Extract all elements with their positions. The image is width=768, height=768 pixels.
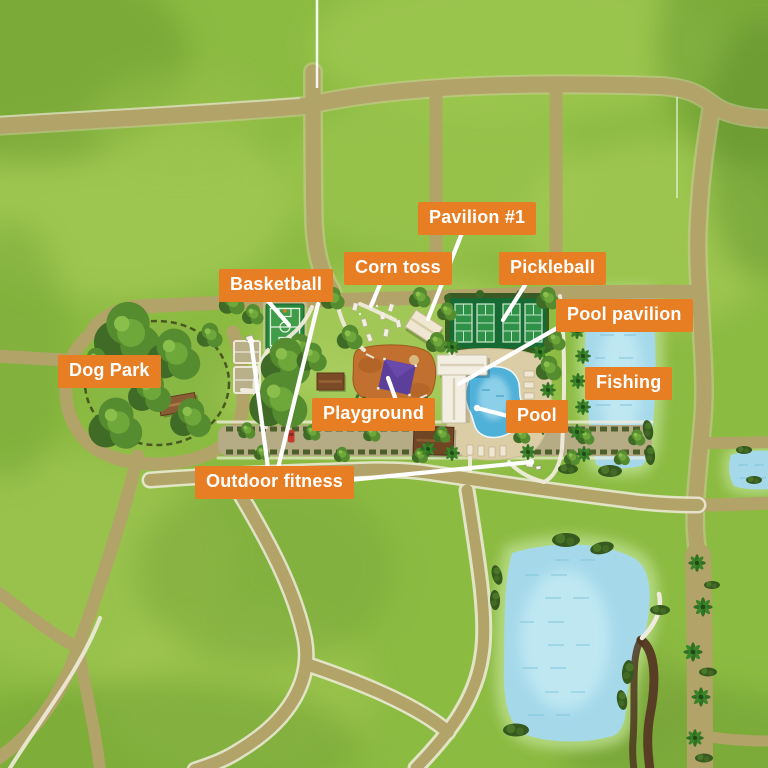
map-label-pickleball: Pickleball — [499, 252, 606, 285]
map-label-playground: Playground — [312, 398, 435, 431]
park-map: Pavilion #1 Corn toss Pickleball Basketb… — [0, 0, 768, 768]
map-label-fishing: Fishing — [585, 367, 672, 400]
map-label-outdoor-fitness: Outdoor fitness — [195, 466, 354, 499]
parked-car-red — [288, 430, 295, 443]
map-label-corn-toss: Corn toss — [344, 252, 452, 285]
map-label-basketball: Basketball — [219, 269, 333, 302]
restroom-building — [317, 373, 346, 392]
map-label-pavilion-1: Pavilion #1 — [418, 202, 536, 235]
big-pond — [504, 544, 650, 741]
map-label-dog-park: Dog Park — [58, 355, 161, 388]
small-pond — [729, 451, 768, 490]
pickleball-courts — [444, 290, 552, 356]
map-label-pool: Pool — [506, 400, 568, 433]
map-label-pool-pavilion: Pool pavilion — [556, 299, 693, 332]
